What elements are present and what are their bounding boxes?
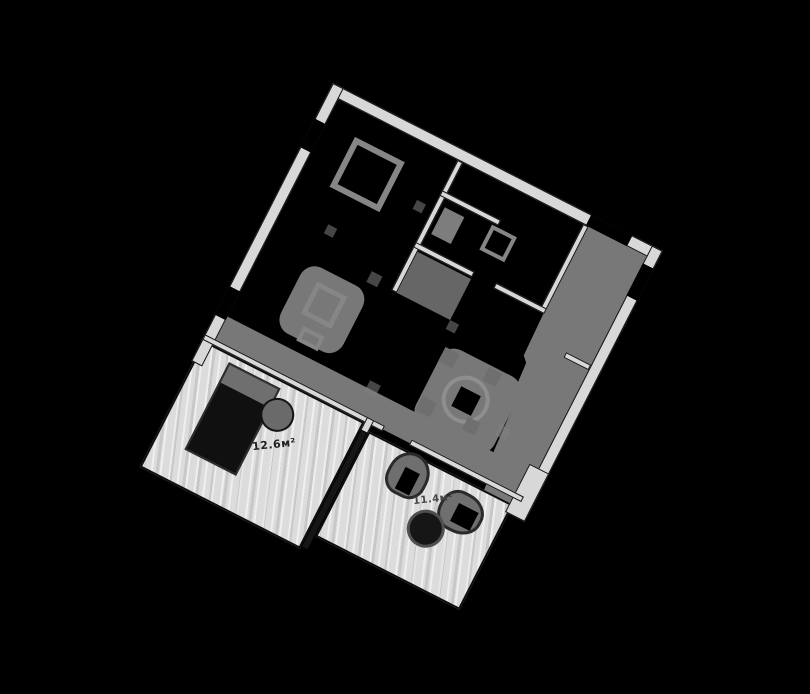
armchair-seat bbox=[395, 467, 420, 496]
armchair-seat bbox=[450, 503, 479, 531]
apartment-plan bbox=[137, 83, 663, 636]
floor-plan-canvas: 12.6м² 11.4м² bbox=[0, 0, 810, 694]
